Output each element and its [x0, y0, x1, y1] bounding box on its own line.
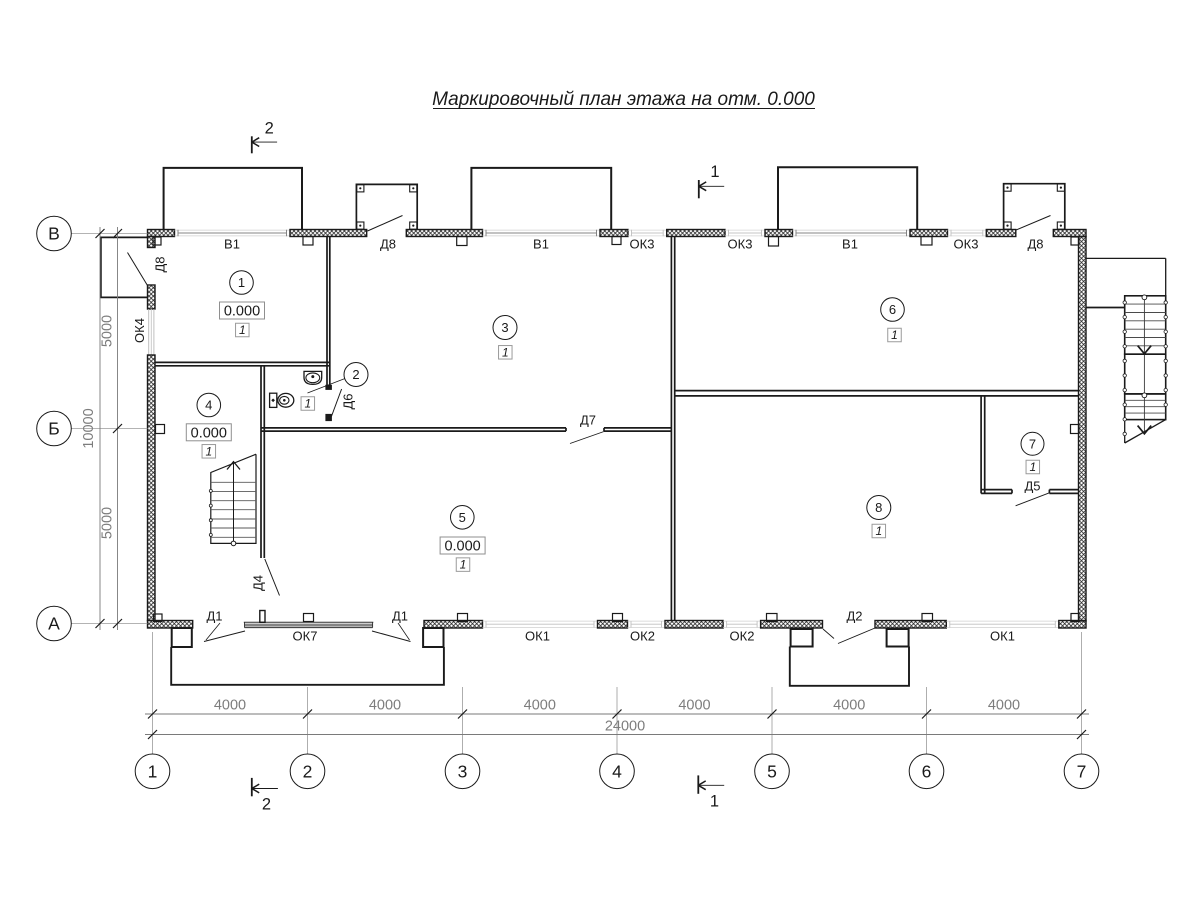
svg-text:В1: В1	[224, 236, 240, 251]
svg-text:4000: 4000	[678, 698, 710, 714]
svg-text:7: 7	[1029, 436, 1036, 451]
svg-text:Д8: Д8	[1027, 237, 1043, 252]
svg-text:4: 4	[612, 761, 622, 781]
svg-text:6: 6	[922, 761, 932, 781]
svg-text:1: 1	[304, 397, 311, 411]
svg-text:Б: Б	[48, 419, 59, 439]
svg-text:ОК4: ОК4	[132, 318, 147, 343]
svg-text:4000: 4000	[214, 698, 246, 714]
svg-text:1: 1	[238, 275, 245, 290]
svg-text:8: 8	[875, 500, 882, 515]
svg-text:1: 1	[148, 761, 158, 781]
svg-text:4: 4	[205, 398, 212, 413]
svg-text:А: А	[48, 614, 60, 634]
svg-text:6: 6	[889, 302, 896, 317]
svg-text:ОК3: ОК3	[728, 237, 753, 252]
svg-text:5000: 5000	[100, 315, 116, 347]
svg-text:7: 7	[1077, 761, 1087, 781]
svg-text:4000: 4000	[369, 698, 401, 714]
svg-text:Д7: Д7	[580, 413, 596, 428]
svg-text:3: 3	[501, 320, 508, 335]
svg-text:4000: 4000	[524, 698, 556, 714]
svg-text:ОК1: ОК1	[525, 629, 550, 644]
svg-text:Д6: Д6	[341, 393, 356, 409]
svg-text:2: 2	[352, 367, 359, 382]
svg-text:ОК3: ОК3	[630, 237, 655, 252]
svg-text:ОК3: ОК3	[954, 237, 979, 252]
svg-text:4000: 4000	[833, 698, 865, 714]
svg-text:10000: 10000	[81, 408, 97, 448]
svg-text:1: 1	[1029, 460, 1036, 474]
svg-text:Д2: Д2	[846, 609, 862, 624]
svg-text:24000: 24000	[605, 719, 645, 735]
svg-text:ОК7: ОК7	[293, 629, 318, 644]
svg-text:Д5: Д5	[1024, 479, 1040, 494]
svg-text:0.000: 0.000	[191, 425, 227, 441]
svg-text:1: 1	[502, 345, 509, 359]
svg-text:В: В	[48, 224, 60, 244]
svg-text:0.000: 0.000	[444, 539, 480, 555]
svg-text:1: 1	[710, 163, 719, 181]
svg-text:Д4: Д4	[251, 575, 266, 591]
svg-text:1: 1	[205, 444, 212, 458]
svg-text:В1: В1	[533, 236, 549, 251]
svg-text:1: 1	[875, 524, 882, 538]
svg-text:1: 1	[891, 328, 898, 342]
svg-text:2: 2	[262, 796, 271, 814]
svg-text:ОК1: ОК1	[990, 629, 1015, 644]
svg-text:Д8: Д8	[153, 256, 168, 272]
svg-text:2: 2	[265, 120, 274, 138]
svg-text:ОК2: ОК2	[630, 629, 655, 644]
svg-text:Д1: Д1	[392, 609, 408, 624]
svg-text:ОК2: ОК2	[730, 629, 755, 644]
svg-text:5: 5	[459, 510, 466, 525]
svg-text:1: 1	[239, 323, 246, 337]
svg-text:Маркировочный план этажа на от: Маркировочный план этажа на отм. 0.000	[432, 89, 815, 110]
svg-text:5000: 5000	[100, 507, 116, 539]
svg-text:5: 5	[767, 761, 777, 781]
svg-text:1: 1	[460, 558, 467, 572]
svg-text:Д8: Д8	[380, 237, 396, 252]
svg-text:4000: 4000	[988, 698, 1020, 714]
svg-text:Д1: Д1	[206, 609, 222, 624]
svg-text:В1: В1	[842, 236, 858, 251]
svg-text:1: 1	[710, 793, 719, 811]
svg-text:0.000: 0.000	[224, 304, 260, 320]
svg-text:3: 3	[458, 761, 468, 781]
svg-text:2: 2	[303, 761, 313, 781]
